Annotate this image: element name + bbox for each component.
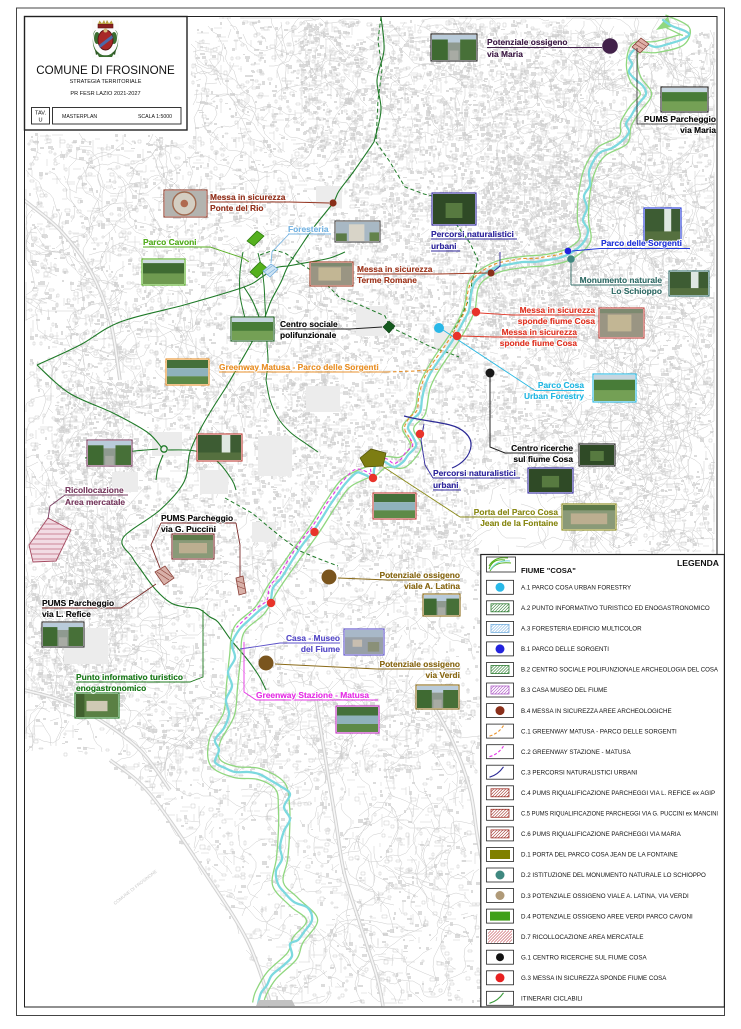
svg-text:PUMS Parcheggio: PUMS Parcheggio — [644, 114, 716, 124]
svg-text:Centro sociale: Centro sociale — [280, 319, 338, 329]
svg-text:C.4 PUMS RIQUALIFICAZIONE PARC: C.4 PUMS RIQUALIFICAZIONE PARCHEGGI VIA … — [521, 790, 715, 797]
svg-text:Greenway Stazione - Matusa: Greenway Stazione - Matusa — [256, 690, 369, 700]
svg-text:Percorsi naturalistici: Percorsi naturalistici — [431, 229, 514, 239]
svg-text:U: U — [38, 118, 42, 124]
svg-text:A.3 FORESTERIA EDIFICIO MULTIC: A.3 FORESTERIA EDIFICIO MULTICOLOR — [521, 626, 642, 633]
svg-text:Area mercatale: Area mercatale — [65, 497, 125, 507]
svg-text:COMUNE DI FROSINONE: COMUNE DI FROSINONE — [36, 64, 175, 77]
svg-text:B.3 CASA MUSEO DEL FIUME: B.3 CASA MUSEO DEL FIUME — [521, 687, 607, 694]
svg-text:Punto informativo turistico: Punto informativo turistico — [76, 672, 183, 682]
svg-text:Potenziale ossigeno: Potenziale ossigeno — [379, 570, 460, 580]
svg-text:TAV.: TAV. — [35, 111, 47, 117]
svg-text:B.1 PARCO DELLE SORGENTI: B.1 PARCO DELLE SORGENTI — [521, 646, 609, 653]
svg-text:Messa in sicurezza: Messa in sicurezza — [210, 192, 286, 202]
svg-text:polifunzionale: polifunzionale — [280, 330, 337, 340]
svg-text:Potenziale ossigeno: Potenziale ossigeno — [487, 37, 568, 47]
svg-text:Parco Cosa: Parco Cosa — [538, 380, 584, 390]
svg-text:A.1 PARCO COSA URBAN FORESTRY: A.1 PARCO COSA URBAN FORESTRY — [521, 585, 631, 592]
svg-text:via Maria: via Maria — [487, 49, 523, 59]
svg-text:Ponte del Rio: Ponte del Rio — [210, 203, 264, 213]
svg-text:PUMS Parcheggio: PUMS Parcheggio — [42, 598, 114, 608]
svg-text:D.1 PORTA DEL PARCO COSA JEAN: D.1 PORTA DEL PARCO COSA JEAN DE LA FONT… — [521, 852, 678, 859]
svg-text:PR FESR LAZIO 2021-2027: PR FESR LAZIO 2021-2027 — [70, 91, 140, 97]
svg-text:urbani: urbani — [431, 241, 457, 251]
svg-text:D.4 POTENZIALE OSSIGENO AREE V: D.4 POTENZIALE OSSIGENO AREE VERDI PARCO… — [521, 913, 693, 920]
svg-text:C.1 GREENWAY MATUSA - PARCO DE: C.1 GREENWAY MATUSA - PARCO DELLE SORGEN… — [521, 728, 677, 735]
svg-text:sponde fiume Cosa: sponde fiume Cosa — [500, 338, 578, 348]
svg-text:enogastronomico: enogastronomico — [76, 683, 146, 693]
svg-text:via Maria: via Maria — [680, 125, 716, 135]
svg-text:G.1 CENTRO RICERCHE SUL FIUME: G.1 CENTRO RICERCHE SUL FIUME COSA — [521, 954, 647, 961]
svg-text:D.2 ISTITUZIONE DEL MONUMENTO: D.2 ISTITUZIONE DEL MONUMENTO NATURALE L… — [521, 872, 706, 879]
svg-text:Urban Forestry: Urban Forestry — [524, 391, 584, 401]
svg-text:Terme Romane: Terme Romane — [357, 275, 417, 285]
svg-text:via Verdi: via Verdi — [426, 670, 460, 680]
svg-text:Foresteria: Foresteria — [288, 224, 329, 234]
svg-text:Jean de la Fontaine: Jean de la Fontaine — [480, 518, 558, 528]
svg-text:Messa in sicurezza: Messa in sicurezza — [502, 327, 578, 337]
svg-text:A.2 PUNTO INFORMATIVO TURISTIC: A.2 PUNTO INFORMATIVO TURISTICO ED ENOGA… — [521, 605, 710, 612]
svg-text:urbani: urbani — [433, 480, 459, 490]
svg-text:Casa - Museo: Casa - Museo — [286, 633, 340, 643]
svg-text:Porta del Parco Cosa: Porta del Parco Cosa — [474, 507, 559, 517]
svg-text:FIUME "COSA": FIUME "COSA" — [521, 566, 576, 575]
svg-text:PUMS Parcheggio: PUMS Parcheggio — [161, 513, 233, 523]
svg-text:via G. Puccini: via G. Puccini — [161, 524, 216, 534]
svg-text:B.4 MESSA IN SICUREZZA AREE AR: B.4 MESSA IN SICUREZZA AREE ARCHEOLOGICH… — [521, 708, 672, 715]
svg-text:Messa in sicurezza: Messa in sicurezza — [357, 264, 433, 274]
svg-text:MASTERPLAN: MASTERPLAN — [62, 114, 97, 120]
svg-text:SCALA 1:5000: SCALA 1:5000 — [138, 114, 172, 120]
svg-text:D.3 POTENZIALE OSSIGENO VIALE: D.3 POTENZIALE OSSIGENO VIALE A. LATINA,… — [521, 893, 689, 900]
svg-text:via L. Refice: via L. Refice — [42, 609, 91, 619]
svg-text:Potenziale ossigeno: Potenziale ossigeno — [379, 659, 460, 669]
svg-text:Parco delle Sorgenti: Parco delle Sorgenti — [601, 238, 682, 248]
svg-text:B.2 CENTRO SOCIALE POLIFUNZION: B.2 CENTRO SOCIALE POLIFUNZIONALE ARCHEO… — [521, 667, 719, 674]
svg-text:Percorsi naturalistici: Percorsi naturalistici — [433, 468, 516, 478]
svg-text:C.5 PUMS RIQUALIFICAZIONE PARC: C.5 PUMS RIQUALIFICAZIONE PARCHEGGI VIA … — [521, 811, 718, 818]
svg-text:D.7 RICOLLOCAZIONE AREA MERCAT: D.7 RICOLLOCAZIONE AREA MERCATALE — [521, 934, 644, 941]
svg-text:Greenway Matusa - Parco delle: Greenway Matusa - Parco delle Sorgenti — [219, 362, 379, 372]
svg-text:del Fiume: del Fiume — [301, 644, 340, 654]
svg-text:C.3 PERCORSI NATURALISTICI URB: C.3 PERCORSI NATURALISTICI URBANI — [521, 770, 638, 777]
svg-text:G.3 MESSA IN SICUREZZA SPONDE: G.3 MESSA IN SICUREZZA SPONDE FIUME COSA — [521, 975, 667, 982]
svg-text:Monumento naturale: Monumento naturale — [580, 275, 663, 285]
svg-text:C.2 GREENWAY STAZIONE - MATUSA: C.2 GREENWAY STAZIONE - MATUSA — [521, 749, 632, 756]
svg-text:LEGENDA: LEGENDA — [677, 558, 719, 568]
svg-text:viale A. Latina: viale A. Latina — [404, 581, 460, 591]
svg-text:C.6 PUMS RIQUALIFICAZIONE PARC: C.6 PUMS RIQUALIFICAZIONE PARCHEGGI VIA … — [521, 831, 682, 838]
svg-text:Centro ricerche: Centro ricerche — [511, 443, 573, 453]
svg-text:sul fiume Cosa: sul fiume Cosa — [513, 454, 573, 464]
svg-text:Messa in sicurezza: Messa in sicurezza — [520, 305, 596, 315]
svg-text:Ricollocazione: Ricollocazione — [65, 485, 124, 495]
svg-text:Lo Schioppo: Lo Schioppo — [611, 286, 662, 296]
svg-text:Parco Cavoni: Parco Cavoni — [143, 237, 197, 247]
svg-text:ITINERARI CICLABILI: ITINERARI CICLABILI — [521, 996, 583, 1003]
svg-text:sponde fiume Cosa: sponde fiume Cosa — [518, 316, 596, 326]
svg-text:STRATEGIA TERRITORIALE: STRATEGIA TERRITORIALE — [70, 79, 142, 85]
